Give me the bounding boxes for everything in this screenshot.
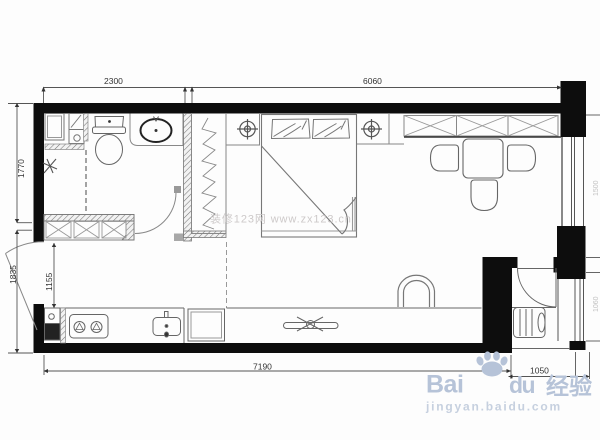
svg-text:1155: 1155 [44, 272, 54, 291]
svg-text:Bai: Bai [426, 371, 463, 399]
svg-text:2300: 2300 [104, 76, 123, 86]
svg-text:7190: 7190 [253, 362, 272, 372]
svg-text:6060: 6060 [363, 76, 382, 86]
svg-text:经验: 经验 [546, 373, 592, 399]
svg-text:装修123网 www.zx123.cn: 装修123网 www.zx123.cn [210, 212, 352, 226]
svg-text:1500: 1500 [593, 180, 600, 196]
svg-text:1060: 1060 [593, 296, 600, 312]
svg-text:du: du [509, 372, 535, 398]
svg-text:1770: 1770 [16, 159, 26, 178]
svg-text:jingyan.baidu.com: jingyan.baidu.com [425, 400, 562, 414]
svg-text:1835: 1835 [8, 265, 18, 284]
